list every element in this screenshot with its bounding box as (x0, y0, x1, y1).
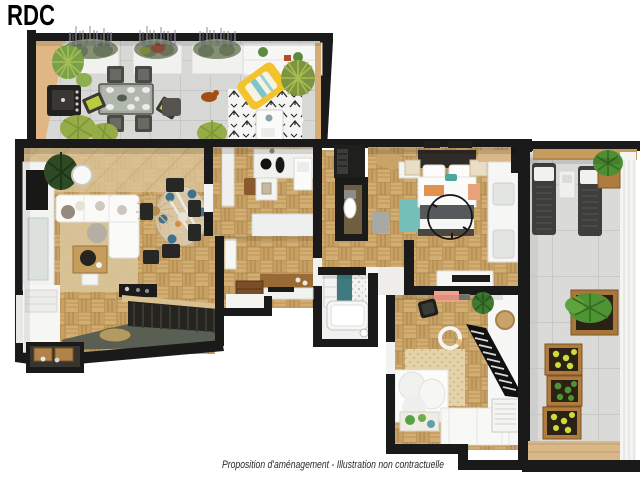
svg-text:Proposition d'aménagement - Il: Proposition d'aménagement - Illustration… (222, 459, 444, 471)
svg-text:RDC: RDC (7, 0, 55, 32)
